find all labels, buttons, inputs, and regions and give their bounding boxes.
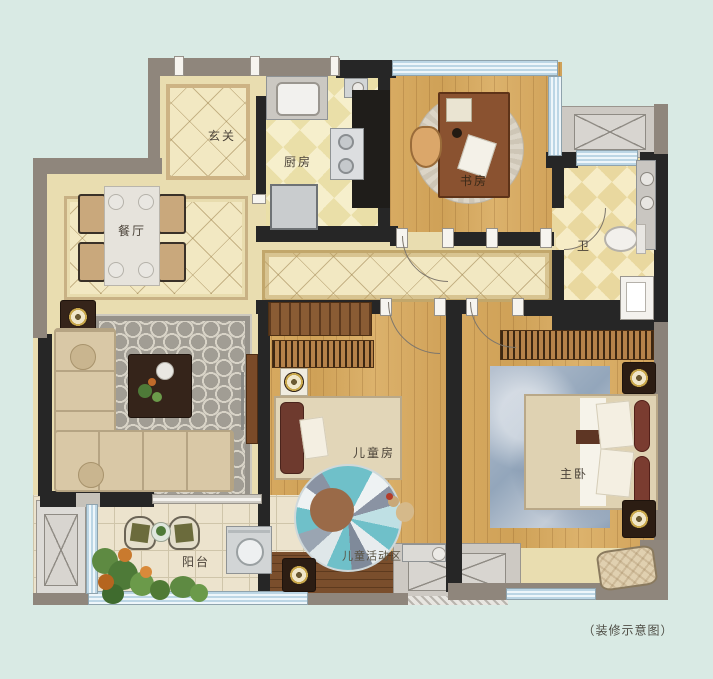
washing-machine-drum <box>236 538 264 566</box>
kitchen-sink <box>276 82 320 116</box>
washing-machine-panel <box>228 530 270 533</box>
wall-segment <box>38 334 52 496</box>
table-lamp <box>68 307 88 327</box>
pillar-cap <box>330 56 339 76</box>
kids-bookshelf <box>272 340 374 368</box>
sofa-pillow <box>78 462 104 488</box>
dining-chair <box>158 242 186 282</box>
room-label-master: 主卧 <box>560 468 588 480</box>
wall-segment <box>256 96 266 202</box>
stove-burner <box>338 134 354 150</box>
room-label-foyer: 玄关 <box>208 130 236 142</box>
room-label-bath: 卫 <box>577 240 591 252</box>
dining-chair <box>78 194 106 234</box>
window <box>86 504 98 594</box>
fridge <box>270 184 318 230</box>
plant <box>190 584 208 602</box>
toilet <box>604 226 638 252</box>
master-bolster <box>634 400 650 452</box>
desk-chair <box>410 126 442 168</box>
pillar-cap <box>174 56 184 76</box>
wall-segment <box>33 158 47 338</box>
room-label-kids-activity: 儿童活动区 <box>342 551 402 562</box>
platform-lamp <box>289 565 309 585</box>
wall-segment <box>33 158 162 174</box>
pouf-cushion <box>595 544 658 592</box>
ac-platform-top-x <box>574 114 646 150</box>
master-lamp <box>629 509 649 529</box>
window <box>548 76 562 156</box>
wall-segment <box>148 62 160 170</box>
wall-segment <box>33 593 91 605</box>
master-pillow <box>596 448 635 497</box>
window <box>506 588 596 600</box>
coffee-table-plant <box>152 392 162 402</box>
kids-bed-bolster <box>280 402 304 474</box>
vanity-basin <box>626 282 646 312</box>
wall-segment <box>258 300 270 556</box>
desk-lamp <box>446 98 472 122</box>
plan-caption: （装修示意图） <box>582 622 673 639</box>
room-label-dining: 餐厅 <box>118 225 146 237</box>
toilet-tank <box>636 224 646 254</box>
dining-chair <box>78 242 106 282</box>
pillar-cap <box>252 194 266 204</box>
inkstone <box>452 128 462 138</box>
room-label-study: 书房 <box>460 175 488 187</box>
elevator-shaft-x <box>44 514 78 586</box>
pillar-cap <box>250 56 260 76</box>
bath-sink <box>640 196 654 210</box>
bath-sink <box>640 172 654 186</box>
pumpkin <box>118 548 132 562</box>
kids-lamp <box>284 372 304 392</box>
dining-chair <box>158 194 186 234</box>
stove-burner <box>338 158 354 174</box>
plate <box>108 262 124 278</box>
wall-segment <box>654 152 668 324</box>
plate <box>108 194 124 210</box>
plant <box>150 580 170 600</box>
balcony-chair-cushion <box>174 523 194 543</box>
floor-plan: 玄关 厨房 书房 卫 餐厅 儿童房 主卧 阳台 儿童活动区 （装修示意图） <box>0 0 713 679</box>
window <box>576 150 638 166</box>
coffee-table-plant <box>138 384 152 398</box>
room-label-balcony: 阳台 <box>182 556 210 568</box>
teddy-bear-hat <box>386 493 393 500</box>
room-label-kids: 儿童房 <box>353 447 395 459</box>
sofa-pillow <box>70 344 96 370</box>
wall-segment <box>654 104 668 154</box>
pumpkin <box>140 566 152 578</box>
plate <box>138 194 154 210</box>
room-label-kitchen: 厨房 <box>284 156 312 168</box>
pumpkin <box>98 574 114 590</box>
coffee-table-plate <box>156 362 174 380</box>
balcony-table-plant <box>156 526 166 536</box>
tv-console <box>246 354 258 444</box>
sliding-door <box>152 494 262 504</box>
plate <box>138 262 154 278</box>
tv <box>241 372 244 430</box>
master-lamp <box>629 368 649 388</box>
master-pillow <box>596 400 635 449</box>
ac-unit-fan <box>432 547 446 561</box>
kids-wardrobe <box>268 302 372 336</box>
window <box>392 60 558 76</box>
kids-rug-center <box>310 488 354 532</box>
balcony-chair-cushion <box>130 523 150 543</box>
coffee-table-fruit <box>148 378 156 386</box>
